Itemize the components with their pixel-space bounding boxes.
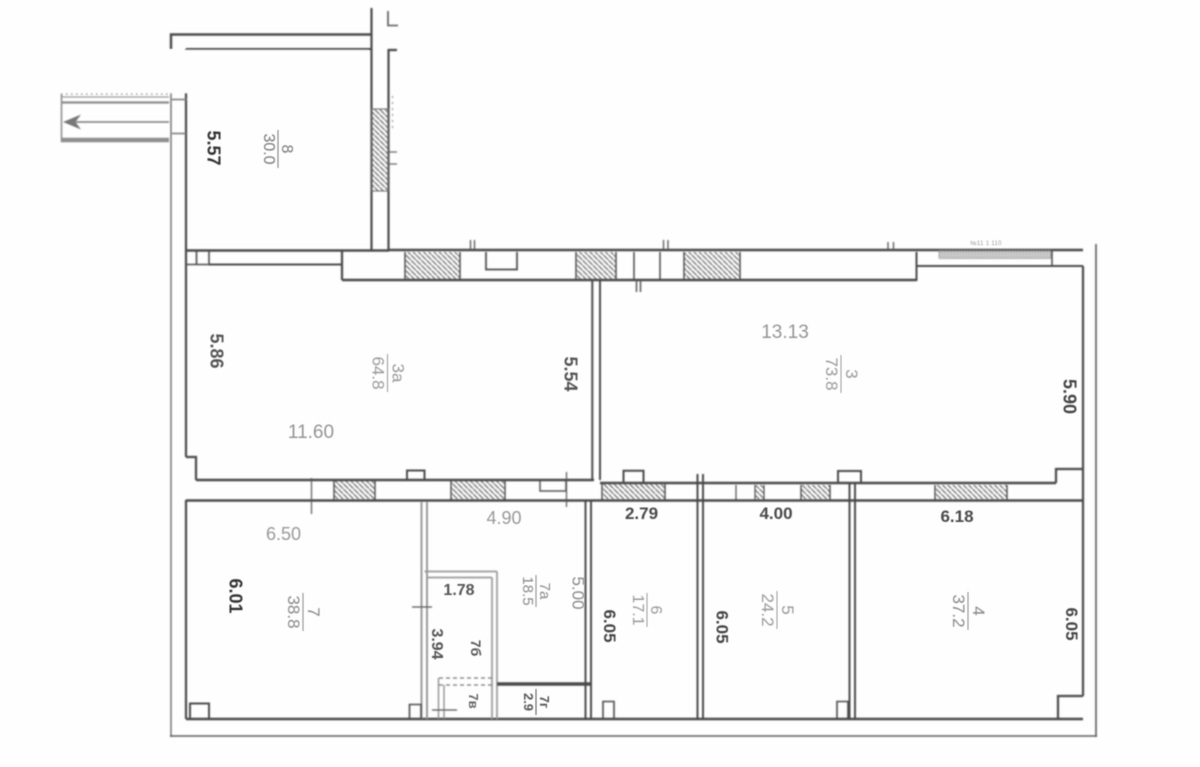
svg-text:73.8: 73.8 <box>822 357 841 390</box>
svg-text:6.01: 6.01 <box>226 578 246 613</box>
svg-text:8: 8 <box>278 145 295 154</box>
svg-text:7в: 7в <box>466 693 481 708</box>
svg-text:2.9: 2.9 <box>521 693 536 711</box>
svg-text:7: 7 <box>304 607 323 616</box>
svg-text:17.1: 17.1 <box>629 594 646 625</box>
svg-text:30.0: 30.0 <box>260 133 277 164</box>
svg-text:5.86: 5.86 <box>207 333 227 368</box>
svg-text:4: 4 <box>969 606 988 615</box>
svg-text:6.05: 6.05 <box>713 610 732 643</box>
svg-text:5: 5 <box>778 605 797 614</box>
svg-text:18.5: 18.5 <box>519 576 536 605</box>
svg-text:4.90: 4.90 <box>486 508 521 528</box>
svg-text:64.8: 64.8 <box>369 356 388 389</box>
svg-text:13.13: 13.13 <box>761 322 809 343</box>
svg-text:3: 3 <box>842 369 861 378</box>
svg-text:№11 1 110: №11 1 110 <box>970 240 1002 247</box>
svg-text:7б: 7б <box>468 640 484 657</box>
svg-text:7а: 7а <box>536 583 553 600</box>
svg-text:37.2: 37.2 <box>949 594 968 627</box>
svg-text:3а: 3а <box>389 364 408 383</box>
svg-text:7г: 7г <box>537 696 552 709</box>
svg-text:6.05: 6.05 <box>1062 607 1081 640</box>
svg-text:5.57: 5.57 <box>204 130 224 165</box>
svg-text:24.2: 24.2 <box>758 593 777 626</box>
svg-text:3.94: 3.94 <box>428 628 445 659</box>
svg-text:5.90: 5.90 <box>1060 379 1080 414</box>
svg-text:6: 6 <box>647 606 664 615</box>
svg-text:6.05: 6.05 <box>600 609 619 642</box>
svg-text:5.00: 5.00 <box>569 576 588 609</box>
svg-text:2.79: 2.79 <box>625 504 658 523</box>
svg-text:11.60: 11.60 <box>288 422 334 443</box>
svg-text:1.78: 1.78 <box>443 582 474 599</box>
svg-text:38.8: 38.8 <box>284 595 303 628</box>
svg-text:6.18: 6.18 <box>940 507 973 526</box>
svg-text:5.54: 5.54 <box>561 356 581 391</box>
svg-text:4.00: 4.00 <box>759 504 792 523</box>
svg-text:6.50: 6.50 <box>266 524 301 544</box>
